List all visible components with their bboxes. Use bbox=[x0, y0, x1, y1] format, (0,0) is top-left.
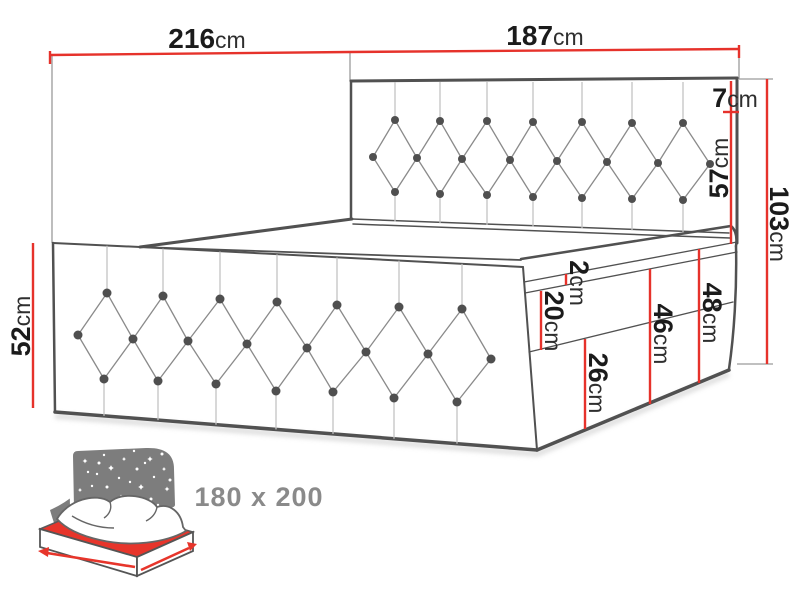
headboard-tufting bbox=[369, 82, 714, 232]
tuft-line bbox=[428, 309, 462, 354]
tuft-line bbox=[658, 163, 683, 200]
tuft-line bbox=[78, 335, 104, 379]
tuft-line bbox=[158, 341, 188, 381]
tuft-button bbox=[184, 337, 193, 346]
tuft-line bbox=[582, 122, 607, 162]
tuft-line bbox=[395, 158, 417, 192]
tuft-button bbox=[458, 305, 467, 314]
tuft-button bbox=[529, 193, 537, 201]
star-dot bbox=[106, 486, 109, 489]
panel-left-edge bbox=[53, 243, 55, 412]
tuft-button bbox=[487, 355, 496, 364]
tuft-button bbox=[243, 340, 252, 349]
star-dot bbox=[118, 477, 120, 479]
tuft-line bbox=[557, 161, 582, 198]
star-dot bbox=[98, 462, 101, 465]
tuft-button bbox=[212, 380, 221, 389]
tuft-line bbox=[533, 122, 557, 161]
tuft-button bbox=[578, 194, 586, 202]
tuft-button bbox=[453, 398, 462, 407]
tuft-line bbox=[487, 160, 510, 195]
tuft-line bbox=[337, 305, 366, 352]
tuft-button bbox=[303, 344, 312, 353]
tuft-button bbox=[154, 377, 163, 386]
label-base-upper: 20cm bbox=[539, 291, 569, 352]
tuft-line bbox=[373, 120, 395, 157]
tuft-line bbox=[247, 344, 276, 391]
tuft-line bbox=[632, 123, 658, 163]
tuft-line bbox=[395, 120, 417, 158]
tuft-button bbox=[333, 301, 342, 310]
tuft-button bbox=[391, 188, 399, 196]
tuft-button bbox=[273, 298, 282, 307]
tuft-button bbox=[679, 119, 687, 127]
star-dot bbox=[91, 485, 93, 487]
tuft-button bbox=[628, 119, 636, 127]
tuft-line bbox=[220, 299, 247, 344]
tuft-line bbox=[417, 121, 440, 158]
tuft-button bbox=[413, 154, 421, 162]
tuft-line bbox=[462, 159, 487, 195]
label-total-length: 216cm bbox=[168, 23, 245, 54]
tuft-button bbox=[395, 303, 404, 312]
tuft-button bbox=[272, 387, 281, 396]
size-label: 180 x 200 bbox=[194, 482, 323, 512]
tuft-button bbox=[362, 348, 371, 357]
label-foot-height: 52cm bbox=[6, 296, 36, 357]
label-base-lower: 26cm bbox=[583, 353, 613, 414]
diagram-canvas: 216cm 187cm 7cm 57cm 103cm 52cm 2cm 20cm… bbox=[0, 0, 800, 600]
tuft-button bbox=[529, 118, 537, 126]
tuft-line bbox=[216, 344, 247, 384]
label-headboard-border: 7cm bbox=[712, 83, 758, 113]
tuft-button bbox=[679, 196, 687, 204]
tuft-line bbox=[457, 359, 491, 402]
star-dot bbox=[169, 479, 172, 482]
label-headboard-inner: 57cm bbox=[704, 138, 734, 199]
tuft-button bbox=[458, 155, 466, 163]
star-dot bbox=[133, 450, 135, 452]
star-dot bbox=[153, 476, 155, 478]
tuft-line bbox=[658, 123, 683, 163]
tuft-line bbox=[683, 123, 710, 164]
tuft-button bbox=[329, 388, 338, 397]
star-dot bbox=[103, 454, 105, 456]
tuft-button bbox=[100, 375, 109, 384]
tuft-button bbox=[483, 117, 491, 125]
tuft-line bbox=[366, 307, 399, 352]
tuft-line bbox=[557, 122, 582, 161]
bed-dimension-diagram: 216cm 187cm 7cm 57cm 103cm 52cm 2cm 20cm… bbox=[0, 0, 800, 600]
tuft-line bbox=[373, 157, 395, 192]
tuft-button bbox=[628, 195, 636, 203]
panel-corner-edge bbox=[523, 267, 537, 450]
tuft-line bbox=[462, 309, 491, 359]
tuft-button bbox=[74, 331, 83, 340]
tuft-button bbox=[390, 394, 399, 403]
tuft-line bbox=[307, 348, 333, 392]
panel-top-edge bbox=[53, 243, 523, 267]
base-right-edge bbox=[729, 246, 736, 369]
tuft-button bbox=[603, 158, 611, 166]
tuft-button bbox=[578, 118, 586, 126]
tuft-button bbox=[424, 350, 433, 359]
tuft-line bbox=[107, 293, 133, 339]
base-top-line bbox=[524, 242, 737, 282]
tuft-line bbox=[417, 158, 440, 194]
tuft-line bbox=[607, 123, 632, 162]
tuft-line bbox=[582, 162, 607, 198]
tuft-line bbox=[440, 159, 462, 194]
tuft-button bbox=[391, 116, 399, 124]
star-dot bbox=[129, 481, 131, 483]
label-headboard-width: 187cm bbox=[506, 20, 583, 51]
tuft-line bbox=[188, 341, 216, 384]
tuft-button bbox=[506, 156, 514, 164]
tuft-button bbox=[436, 117, 444, 125]
tuft-line bbox=[163, 296, 188, 341]
foot-panel-tufting bbox=[74, 246, 496, 444]
tuft-line bbox=[133, 339, 158, 381]
star-dot bbox=[59, 499, 62, 502]
tuft-line bbox=[533, 161, 557, 197]
tuft-line bbox=[133, 296, 163, 339]
tuft-line bbox=[487, 121, 510, 160]
tuft-line bbox=[104, 339, 133, 379]
tuft-button bbox=[103, 289, 112, 298]
star-dot bbox=[161, 453, 164, 456]
tuft-button bbox=[483, 191, 491, 199]
label-base-inner: 46cm bbox=[648, 304, 678, 365]
tuft-line bbox=[277, 302, 307, 348]
tuft-line bbox=[307, 305, 337, 348]
tuft-line bbox=[632, 163, 658, 199]
tuft-line bbox=[366, 352, 394, 398]
tuft-line bbox=[440, 121, 462, 159]
tuft-line bbox=[247, 302, 277, 344]
tuft-button bbox=[129, 335, 138, 344]
tuft-button bbox=[369, 153, 377, 161]
tuft-line bbox=[276, 348, 307, 391]
tuft-line bbox=[399, 307, 428, 354]
tuft-button bbox=[159, 292, 168, 301]
star-dot bbox=[87, 471, 89, 473]
tuft-button bbox=[436, 190, 444, 198]
tuft-line bbox=[607, 162, 632, 199]
tuft-line bbox=[428, 354, 457, 402]
mattress-left-edge bbox=[140, 219, 352, 247]
mattress-foot-edge bbox=[140, 247, 521, 260]
tuft-line bbox=[333, 352, 366, 392]
tuft-line bbox=[394, 354, 428, 398]
tuft-button bbox=[654, 159, 662, 167]
star-dot bbox=[96, 473, 98, 475]
tuft-line bbox=[188, 299, 220, 341]
tuft-line bbox=[78, 293, 107, 335]
tuft-line bbox=[510, 122, 533, 160]
star-dot bbox=[136, 468, 139, 471]
tuft-button bbox=[553, 157, 561, 165]
panel-bottom-edge bbox=[55, 412, 537, 450]
size-icon: 180 x 200 bbox=[38, 446, 324, 576]
headboard-top-edge bbox=[351, 78, 737, 81]
star-dot bbox=[144, 462, 146, 464]
tuft-button bbox=[216, 295, 225, 304]
tuft-line bbox=[462, 121, 487, 159]
label-total-height: 103cm bbox=[764, 186, 794, 262]
tuft-line bbox=[510, 160, 533, 197]
label-base-outer: 48cm bbox=[697, 283, 727, 344]
